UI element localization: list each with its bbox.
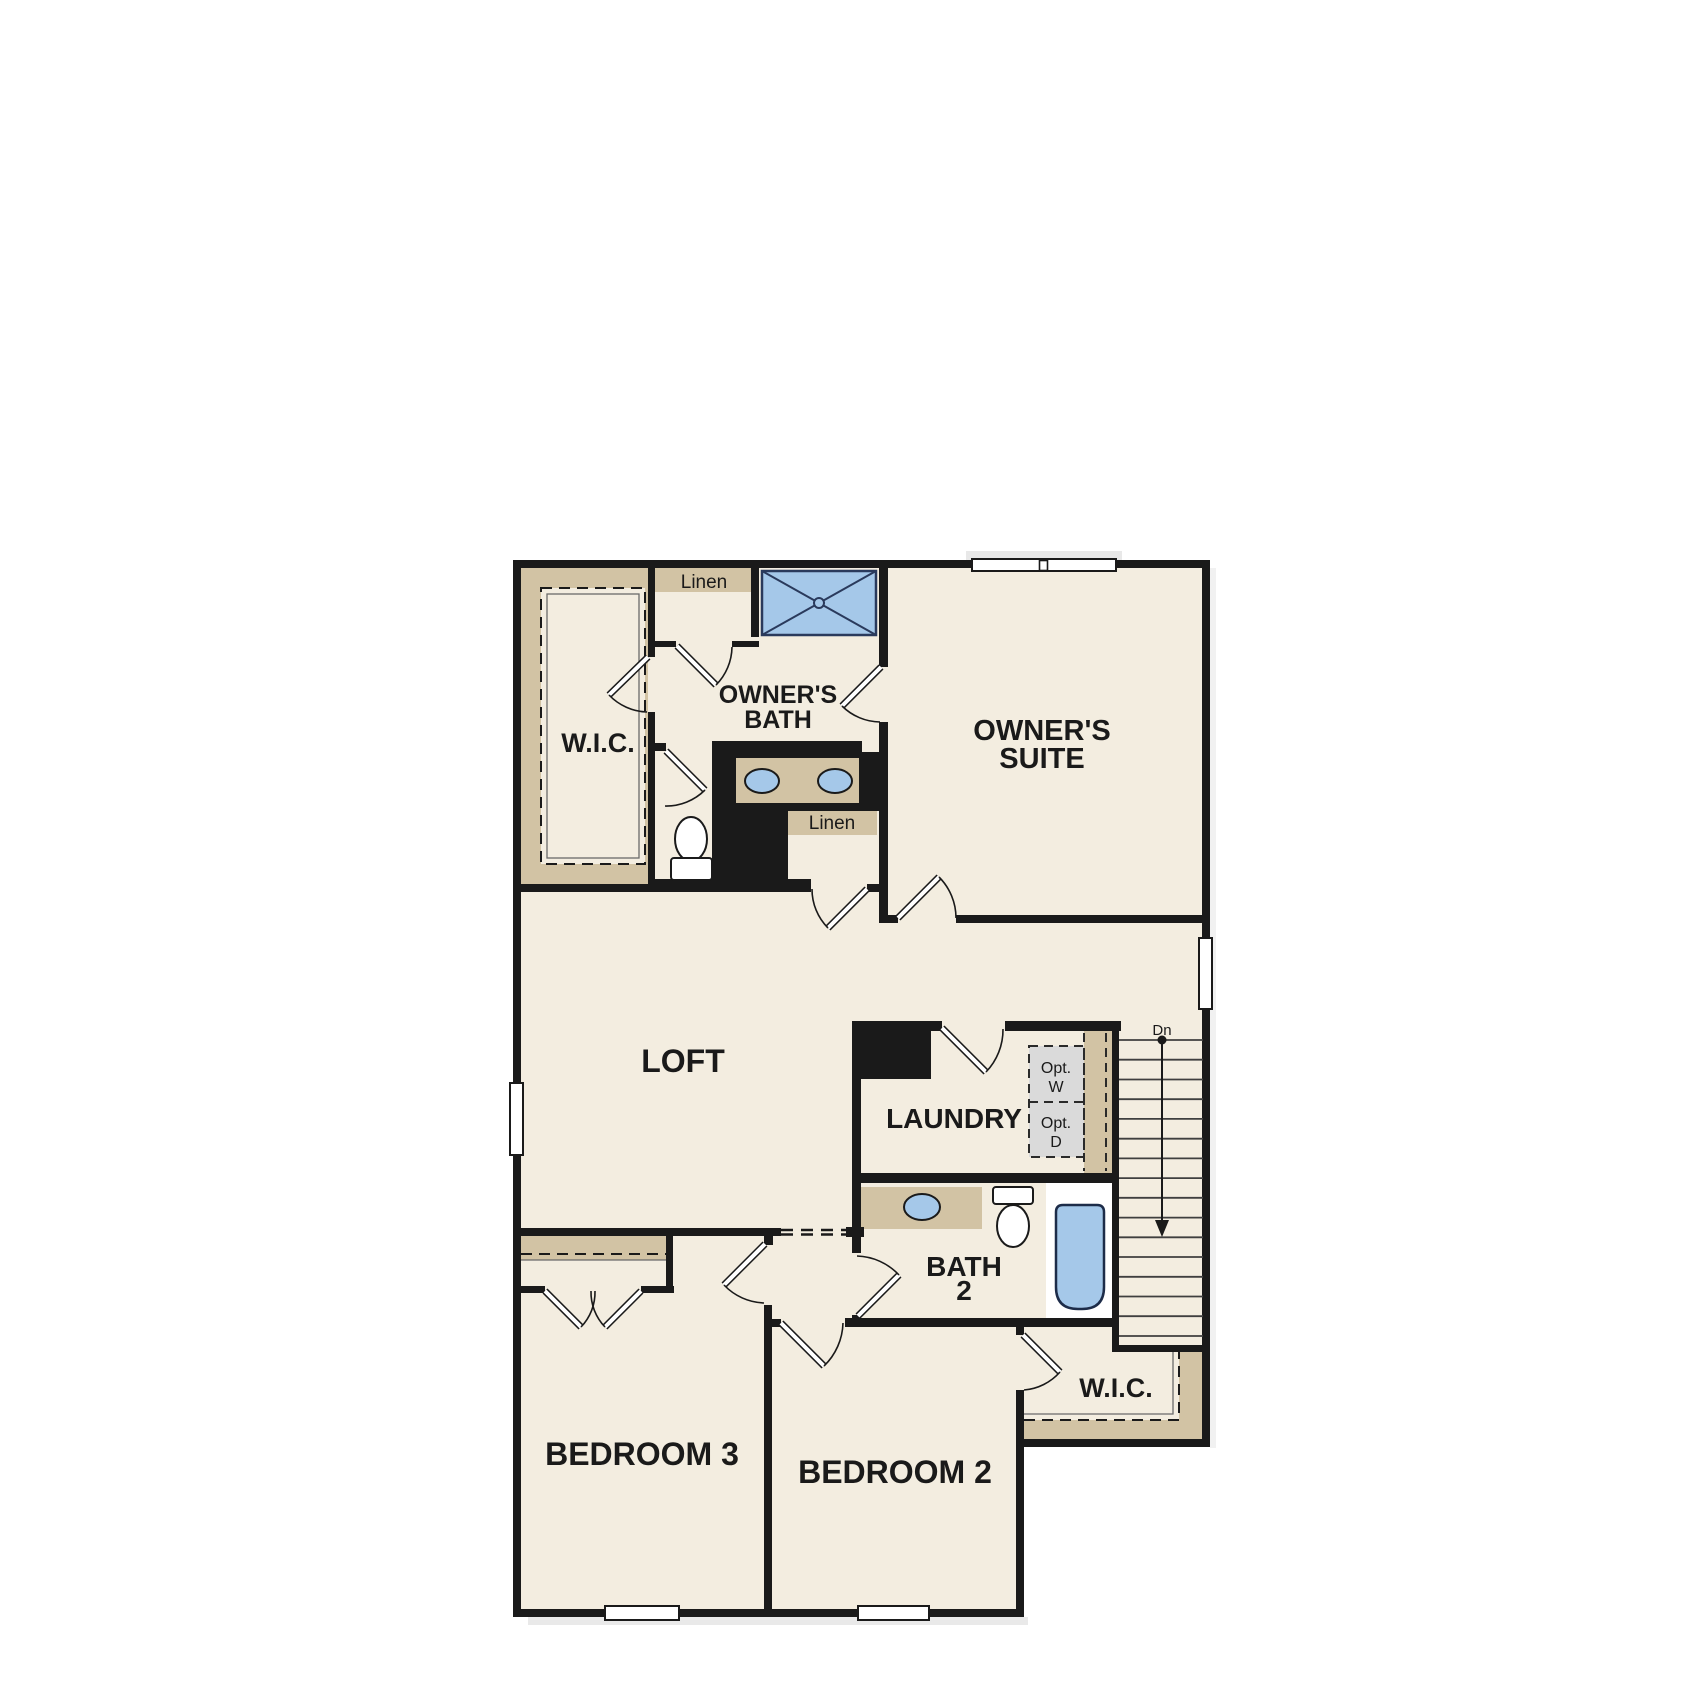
svg-text:W.I.C.: W.I.C. — [1079, 1373, 1153, 1403]
svg-text:SUITE: SUITE — [999, 743, 1084, 775]
svg-text:BATH: BATH — [744, 706, 812, 734]
svg-text:BEDROOM 3: BEDROOM 3 — [545, 1436, 739, 1472]
svg-text:Linen: Linen — [681, 572, 728, 593]
svg-text:W.I.C.: W.I.C. — [561, 728, 635, 758]
svg-text:Linen: Linen — [809, 813, 856, 834]
svg-text:Opt.: Opt. — [1041, 1060, 1071, 1077]
svg-text:LOFT: LOFT — [641, 1043, 725, 1079]
svg-text:W: W — [1048, 1079, 1064, 1096]
svg-text:BEDROOM 2: BEDROOM 2 — [798, 1454, 992, 1490]
svg-text:OWNER'S: OWNER'S — [719, 681, 837, 709]
svg-text:LAUNDRY: LAUNDRY — [886, 1103, 1022, 1134]
svg-text:2: 2 — [956, 1275, 972, 1306]
svg-text:D: D — [1050, 1134, 1062, 1151]
svg-text:Opt.: Opt. — [1041, 1115, 1071, 1132]
